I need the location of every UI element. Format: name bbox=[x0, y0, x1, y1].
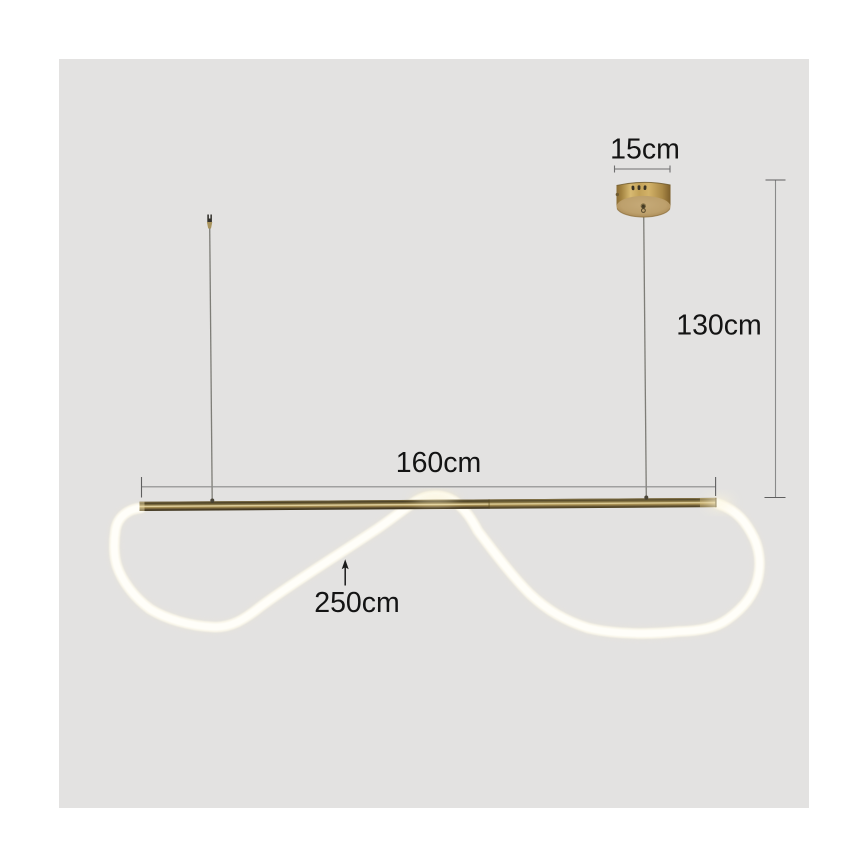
svg-text:250cm: 250cm bbox=[314, 587, 400, 619]
svg-text:160cm: 160cm bbox=[396, 447, 482, 479]
svg-text:130cm: 130cm bbox=[676, 310, 762, 342]
svg-text:15cm: 15cm bbox=[610, 134, 680, 166]
